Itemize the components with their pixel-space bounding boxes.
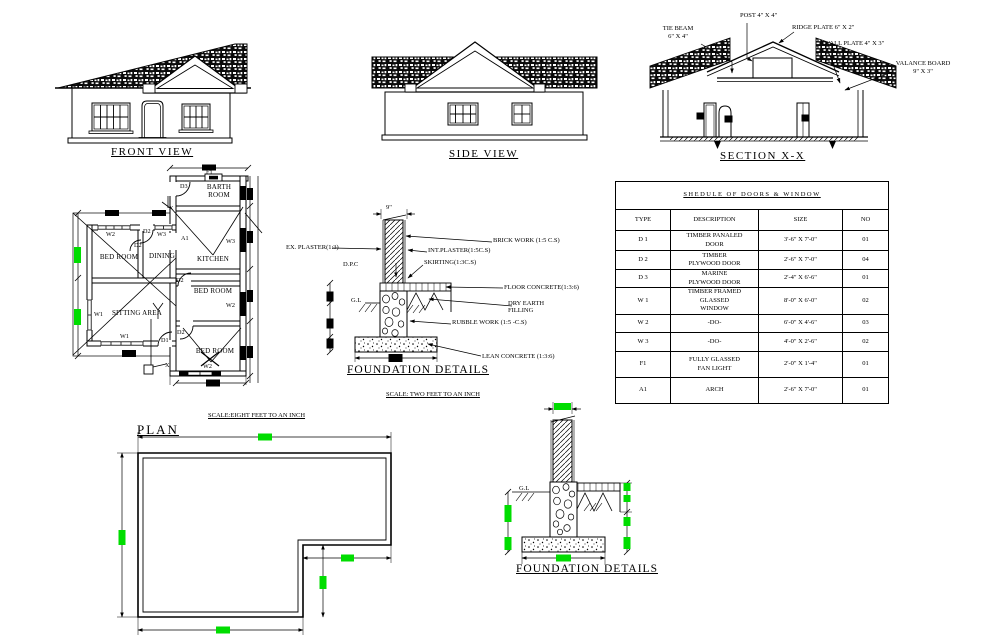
cell-description: -DO- [671, 315, 759, 333]
cell-no: 03 [843, 315, 889, 333]
cell-description: ARCH [671, 378, 759, 404]
floor-concrete-label: FLOOR CONCRETE(1:3:6) [504, 284, 579, 291]
foundation1-scale: SCALE: TWO FEET TO AN INCH [386, 391, 480, 398]
front-view-title: FRONT VIEW [111, 146, 193, 159]
room-sitting: SITTING AREA [106, 310, 168, 318]
plan-title: PLAN [137, 423, 179, 438]
cell-description: TIMBER FRAMED GLASSED WINDOW [671, 288, 759, 315]
side-house [372, 42, 597, 140]
schedule-row: W 2 -DO- 6'-0" X 4'-6" 03 [616, 315, 889, 333]
room-kitchen: KITCHEN [188, 256, 238, 264]
dry-earth-label: DRY EARTH FILLING [508, 300, 544, 315]
gl-label-1: G.L [351, 297, 361, 304]
schedule-row: D 1 TIMBER PANALED DOOR 3'-6" X 7'-0" 01 [616, 231, 889, 251]
cell-no: 02 [843, 333, 889, 352]
cell-type: W 1 [616, 288, 671, 315]
dpc-label: D.P.C [343, 261, 358, 268]
plan-tag-w1-left: W1 [94, 311, 103, 318]
section-structure [650, 38, 896, 149]
room-bed3: BED ROOM [190, 348, 240, 356]
col-no: NO [843, 210, 889, 231]
foundation1-dim-top: 9" [386, 204, 392, 211]
plan-outline-drawing [110, 408, 410, 643]
schedule-row: W 1 TIMBER FRAMED GLASSED WINDOW 8'-0" X… [616, 288, 889, 315]
cell-type: D 3 [616, 270, 671, 288]
valance-board-label: VALANCE BOARD 9" X 3" [889, 60, 957, 76]
foundation2-drawing [500, 398, 670, 588]
cell-size: 8'-0" X 6'-0" [759, 288, 843, 315]
lean-concrete-label: LEAN CONCRETE (1:3:6) [482, 353, 555, 360]
plan-openings [86, 174, 246, 376]
cell-type: F1 [616, 352, 671, 378]
plan-tag-w1-bottom: W1 [120, 333, 129, 340]
cell-size: 2'-6" X 7'-0" [759, 251, 843, 270]
plan-highlights [74, 247, 81, 325]
cell-description: -DO- [671, 333, 759, 352]
cell-size: 2'-6" X 7'-0" [759, 378, 843, 404]
plan-tag-x-top: X [169, 205, 173, 212]
cell-size: 6'-0" X 4'-6" [759, 315, 843, 333]
int-plaster-label: INT.PLASTER(1:5C.S) [428, 247, 490, 254]
cell-type: D 1 [616, 231, 671, 251]
front-house [55, 44, 251, 143]
cell-description: MARINE PLYWOOD DOOR [671, 270, 759, 288]
cell-no: 01 [843, 270, 889, 288]
plan-tag-f1: F1 [206, 169, 213, 176]
col-description: DESCRIPTION [671, 210, 759, 231]
plan-tag-x-bottom: X [165, 362, 169, 369]
schedule-title: SHEDULE OF DOORS & WINDOW [616, 182, 889, 210]
room-dining: DINING [142, 253, 182, 261]
plan-tag-d1: D1 [161, 337, 169, 344]
schedule-row: D 2 TIMBER PLYWOOD DOOR 2'-6" X 7'-0" 04 [616, 251, 889, 270]
cell-no: 04 [843, 251, 889, 270]
schedule-row: F1 FULLY GLASSED FAN LIGHT 2'-0" X 1'-4"… [616, 352, 889, 378]
front-view-drawing [45, 22, 310, 152]
col-type: TYPE [616, 210, 671, 231]
plan-tag-d2-b: D2 [134, 242, 142, 249]
cell-size: 4'-0" X 2'-6" [759, 333, 843, 352]
cell-description: FULLY GLASSED FAN LIGHT [671, 352, 759, 378]
wall-plate-label: WALL PLATE 4" X 3" [824, 40, 884, 48]
cell-description: TIMBER PLYWOOD DOOR [671, 251, 759, 270]
schedule-row: D 3 MARINE PLYWOOD DOOR 2'-4" X 6'-6" 01 [616, 270, 889, 288]
cell-no: 01 [843, 231, 889, 251]
post-label: POST 4" X 4" [740, 12, 777, 20]
plan-tag-w3-top: W3 [157, 231, 166, 238]
side-view-drawing [365, 35, 600, 147]
cell-size: 2'-0" X 1'-4" [759, 352, 843, 378]
side-view-title: SIDE VIEW [449, 148, 518, 161]
tie-beam-label: TIE BEAM 6" X 4" [652, 25, 704, 41]
brick-work-label: BRICK WORK (1:5 C.S) [493, 237, 560, 244]
plan-tag-w2-bottom: W2 [203, 363, 212, 370]
cell-no: 01 [843, 378, 889, 404]
cell-type: D 2 [616, 251, 671, 270]
plan-tag-d2-d: D2 [177, 329, 185, 336]
foundation1-structure [327, 209, 451, 362]
plan-tag-d2-c: D2 [176, 277, 184, 284]
plan-tag-d2-a: D2 [143, 228, 151, 235]
plan-tag-w2-right: W2 [226, 302, 235, 309]
cell-no: 01 [843, 352, 889, 378]
plan-tag-w2-top: W2 [106, 231, 115, 238]
schedule-table: SHEDULE OF DOORS & WINDOW TYPE DESCRIPTI… [615, 181, 889, 404]
cell-no: 02 [843, 288, 889, 315]
plan-tag-a1: A1 [181, 235, 189, 242]
schedule-header-row: TYPE DESCRIPTION SIZE NO [616, 210, 889, 231]
ridge-plate-label: RIDGE PLATE 6" X 2" [792, 24, 854, 32]
skirting-label: SKIRTING(1:3C.S) [424, 259, 476, 266]
foundation2-structure [505, 402, 632, 564]
blueprint-canvas: FRONT VIEW SIDE VIEW [0, 0, 981, 644]
plan-tag-d3: D3 [180, 183, 188, 190]
cell-size: 2'-4" X 6'-6" [759, 270, 843, 288]
plan-outline-walls [138, 453, 391, 617]
plan-tag-w3-right: W3 [226, 238, 235, 245]
room-barth: BARTH ROOM [196, 184, 242, 199]
room-bed2: BED ROOM [188, 288, 238, 296]
cell-type: W 2 [616, 315, 671, 333]
col-size: SIZE [759, 210, 843, 231]
section-title: SECTION X-X [720, 150, 805, 163]
foundation2-title: FOUNDATION DETAILS [516, 563, 658, 576]
cell-type: W 3 [616, 333, 671, 352]
schedule-row: W 3 -DO- 4'-0" X 2'-6" 02 [616, 333, 889, 352]
foundation1-title: FOUNDATION DETAILS [347, 364, 489, 377]
rubble-work-label: RUBBLE WORK (1:5 -C.S) [452, 319, 527, 326]
plan-scale: SCALE:EIGHT FEET TO AN INCH [208, 412, 305, 419]
room-bed1: BED ROOM [95, 254, 143, 262]
ex-plaster-label: EX. PLASTER(1:3) [286, 244, 339, 251]
cell-size: 3'-6" X 7'-0" [759, 231, 843, 251]
gl-label-2: G.L [519, 485, 529, 492]
cell-description: TIMBER PANALED DOOR [671, 231, 759, 251]
